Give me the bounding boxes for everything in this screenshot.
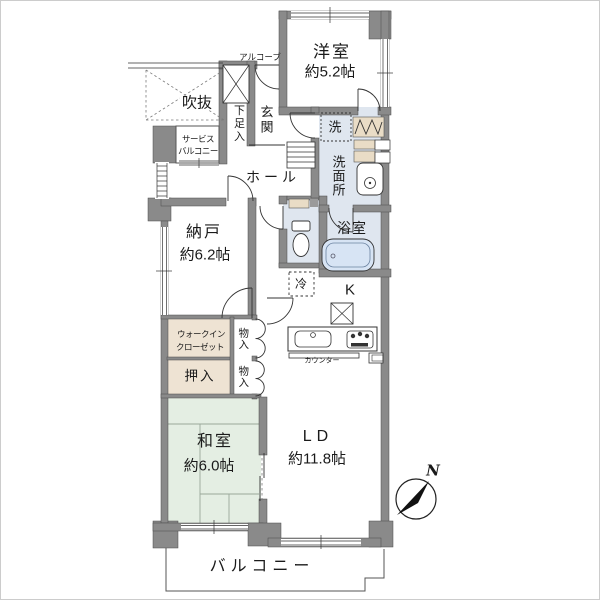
laundry-shelf-upper	[354, 140, 375, 149]
toilet-cabinet	[310, 199, 318, 207]
label-washroom: 洗面所	[332, 155, 345, 197]
label-service-balcony-1: サービス	[182, 135, 214, 144]
label-shoe-cabinet: 下足入	[233, 105, 244, 144]
wall-niche	[369, 353, 383, 363]
pillar-left-upper	[153, 126, 176, 163]
label-storage-room: 納戸	[186, 225, 222, 241]
service-balcony-outline	[176, 126, 219, 163]
label-void: 吹抜	[180, 96, 214, 111]
meter-box-lower	[375, 152, 390, 163]
floor-plan-drawing	[1, 1, 600, 600]
floor-plan: 洋室 約5.2帖 アルコーブ 吹抜 サービス バルコニー 下足入 玄関 ホール …	[0, 0, 600, 600]
label-storage-lower: 物入	[238, 366, 249, 389]
label-alcove: アルコーブ	[239, 53, 281, 62]
label-counter: カウンター	[305, 358, 340, 365]
washbasin-icon	[357, 163, 383, 195]
label-balcony: バルコニー	[210, 559, 315, 575]
meter-box-upper	[375, 140, 390, 150]
label-north: N	[426, 464, 440, 479]
label-walk-in-closet-2: クローゼット	[176, 343, 224, 352]
label-japanese-room: 和室	[197, 434, 233, 450]
north-arrow-icon	[396, 479, 436, 519]
label-walk-in-closet-1: ウォークイン	[177, 330, 225, 339]
folding-doors	[256, 319, 266, 396]
label-living-dining-size: 約11.8帖	[288, 452, 346, 467]
label-entrance: 玄関	[260, 105, 273, 135]
label-refrigerator: 冷	[295, 278, 307, 290]
laundry-shelf-lower	[354, 151, 375, 162]
label-oshiire: 押入	[185, 369, 216, 383]
ladder-icon	[155, 162, 169, 199]
shoe-cabinet-icon	[223, 65, 249, 103]
label-kitchen: K	[345, 283, 355, 298]
label-bathroom: 浴室	[337, 221, 367, 235]
label-western-room: 洋室	[313, 44, 351, 61]
hall-shelf-icon	[287, 142, 315, 168]
label-laundry: 洗	[328, 121, 341, 134]
bathtub-icon	[322, 239, 374, 271]
label-service-balcony-2: バルコニー	[178, 147, 218, 156]
washer-pan-icon	[353, 117, 384, 137]
label-storage-upper: 物入	[238, 328, 249, 351]
label-hall: ホール	[246, 170, 300, 184]
label-living-dining: LD	[303, 429, 333, 445]
label-storage-room-size: 約6.2帖	[180, 248, 231, 263]
label-japanese-room-size: 約6.0帖	[184, 459, 235, 474]
kitchen-cabinet-icon	[331, 303, 353, 324]
label-western-room-size: 約5.2帖	[305, 65, 356, 80]
